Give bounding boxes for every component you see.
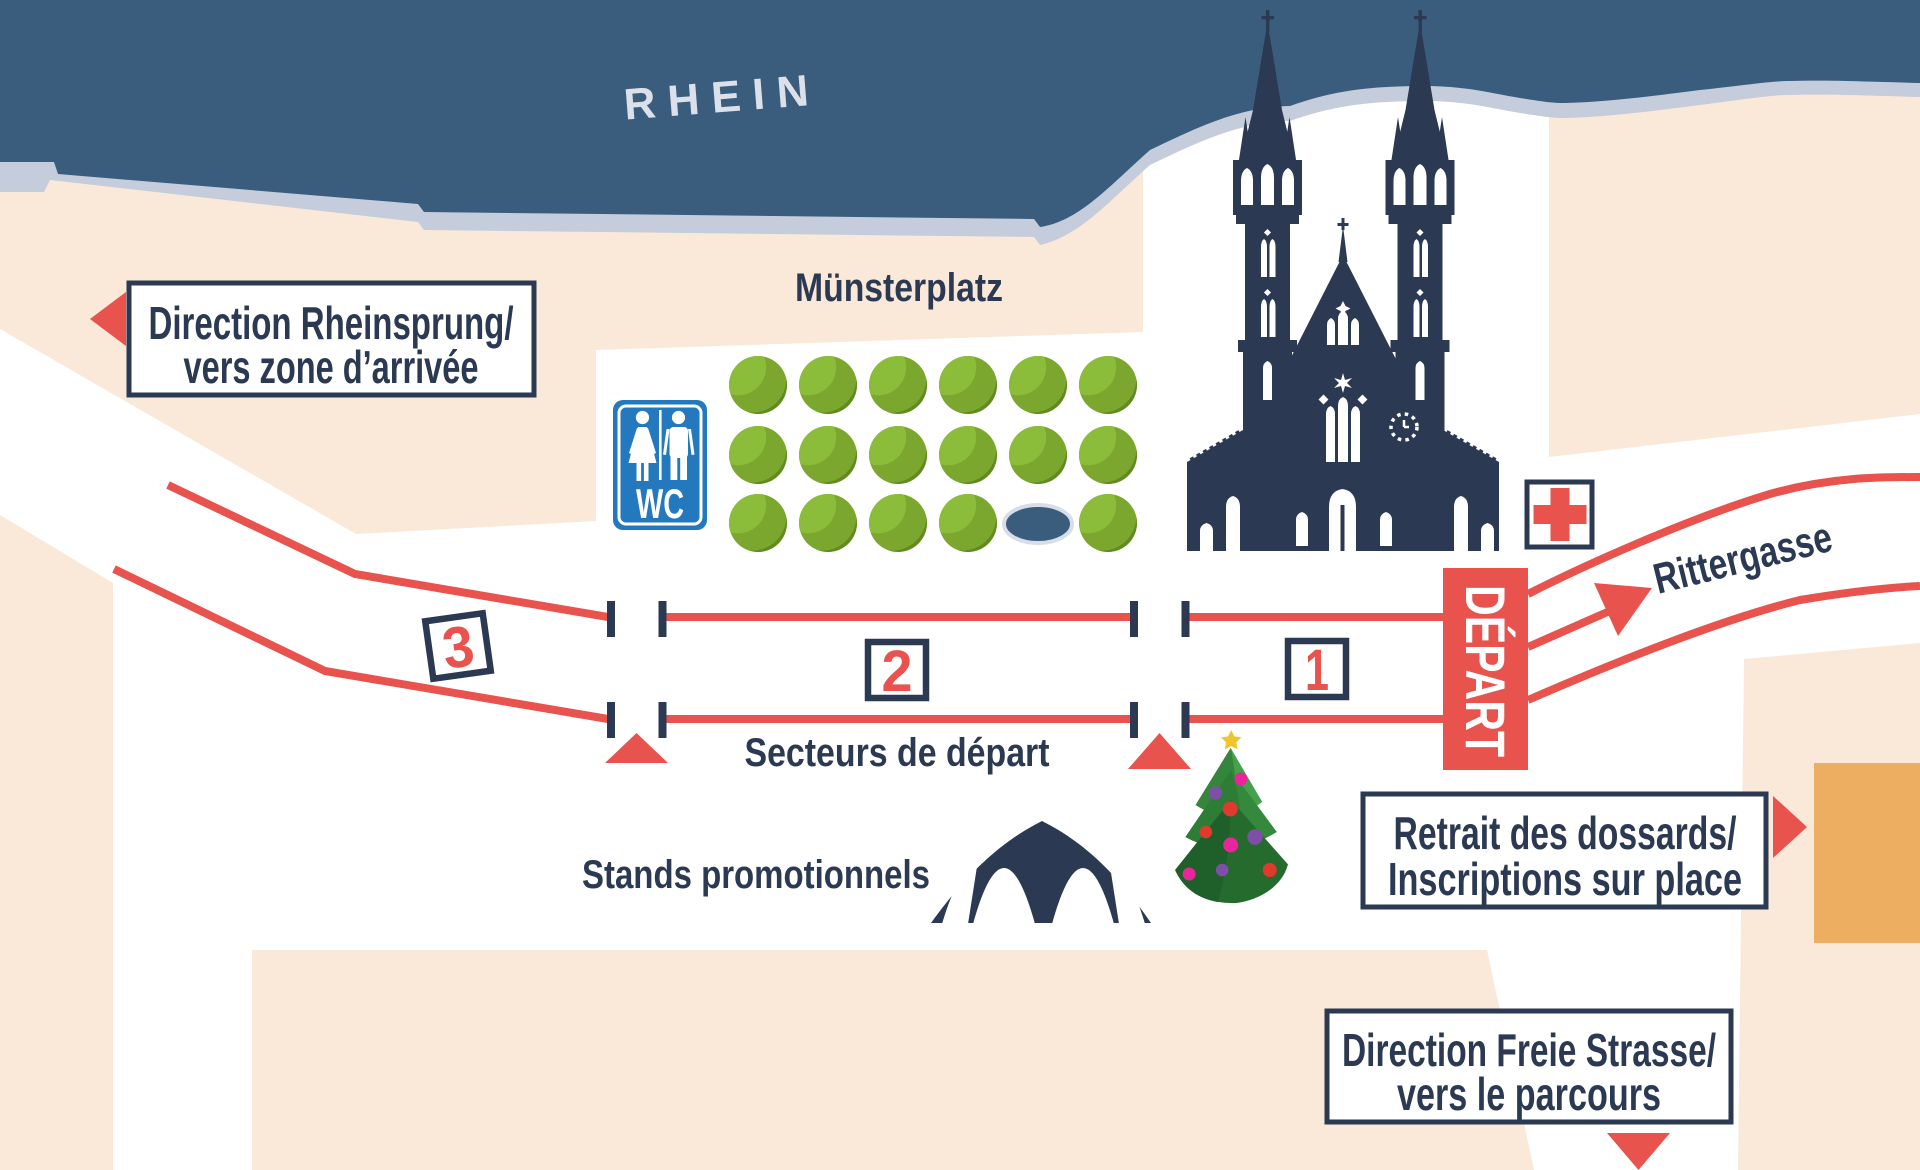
svg-text:2: 2	[882, 639, 913, 704]
svg-text:Secteurs de départ: Secteurs de départ	[745, 731, 1050, 775]
svg-text:Inscriptions sur place: Inscriptions sur place	[1388, 853, 1742, 905]
svg-text:vers zone d’arrivée: vers zone d’arrivée	[184, 341, 479, 393]
svg-text:1: 1	[1305, 638, 1329, 703]
svg-text:Stands promotionnels: Stands promotionnels	[582, 853, 930, 897]
svg-text:Münsterplatz: Münsterplatz	[795, 266, 1003, 310]
svg-text:DÉPART: DÉPART	[1454, 585, 1517, 757]
svg-text:WC: WC	[636, 480, 684, 527]
svg-text:vers le parcours: vers le parcours	[1397, 1068, 1661, 1120]
svg-text:Retrait des dossards/: Retrait des dossards/	[1394, 807, 1737, 859]
